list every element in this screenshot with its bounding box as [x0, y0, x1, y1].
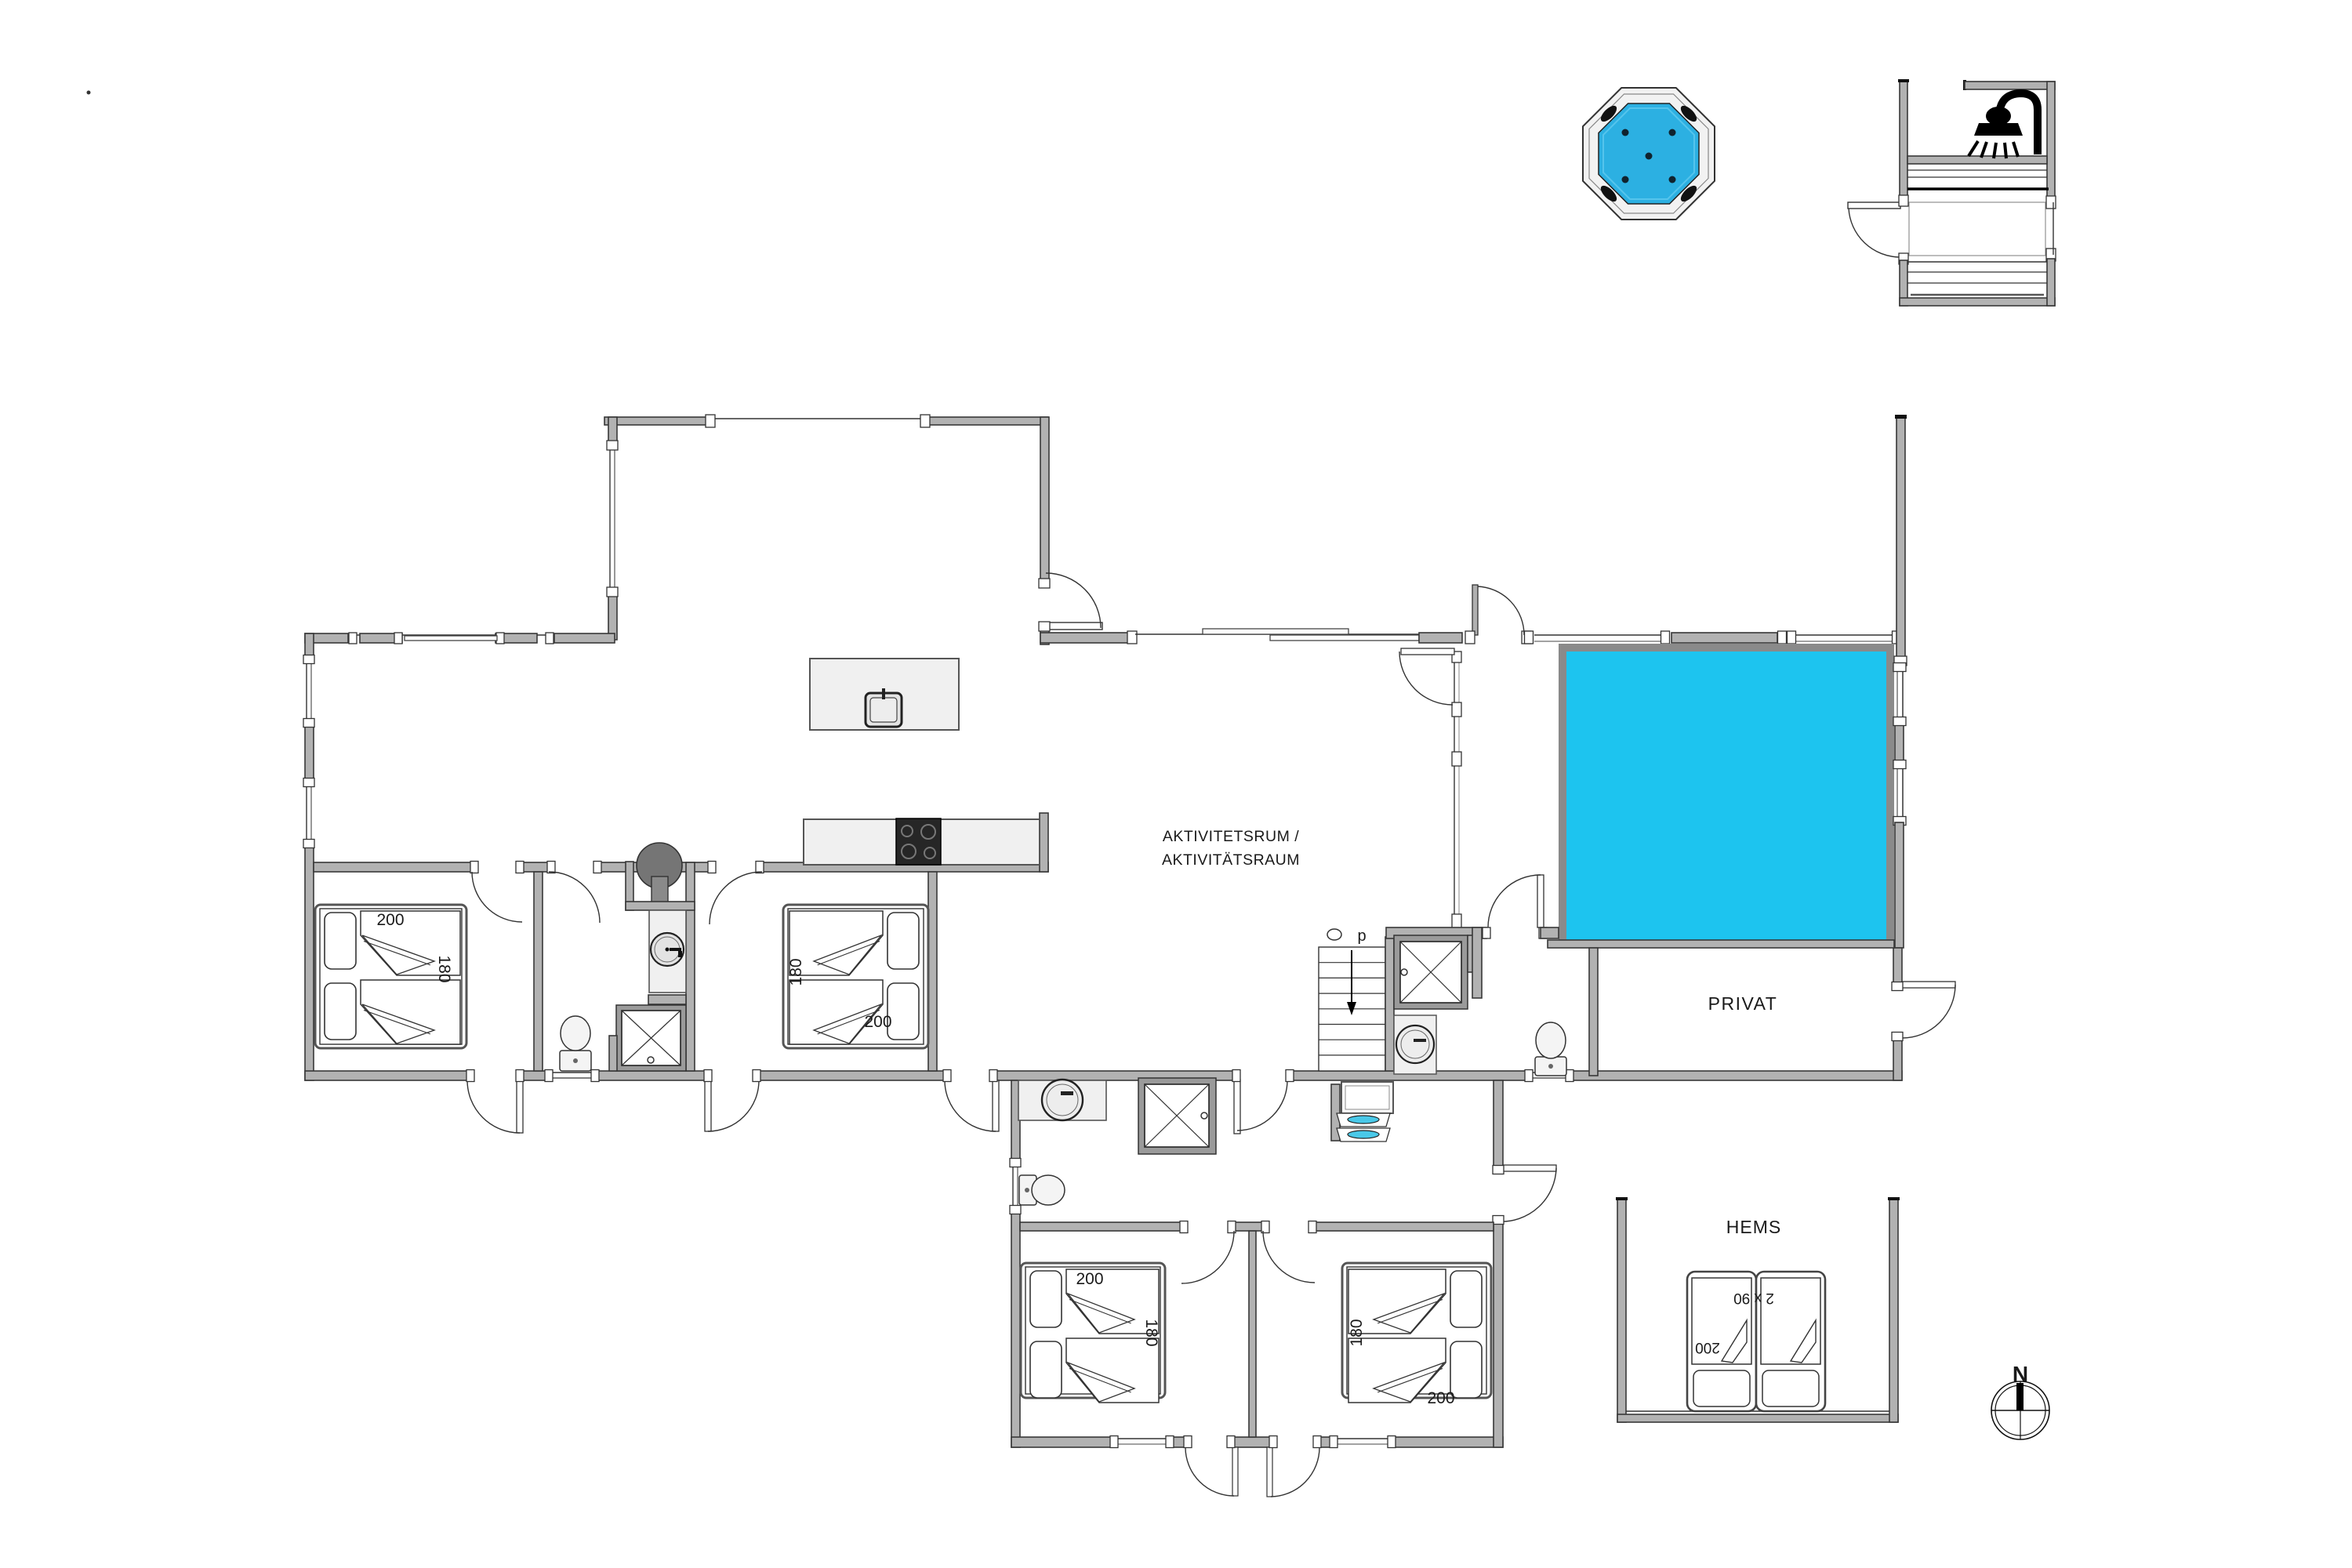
svg-text:180: 180: [787, 958, 805, 985]
svg-text:HEMS: HEMS: [1726, 1217, 1781, 1237]
svg-text:180: 180: [1348, 1319, 1366, 1346]
svg-text:AKTIVITETSRUM /: AKTIVITETSRUM /: [1163, 828, 1299, 845]
svg-text:p: p: [1357, 927, 1366, 945]
svg-text:200: 200: [864, 1013, 891, 1031]
svg-text:180: 180: [1142, 1319, 1160, 1346]
svg-text:200: 200: [1076, 1270, 1103, 1288]
svg-text:N: N: [2013, 1362, 2028, 1386]
svg-text:200: 200: [1695, 1339, 1720, 1356]
svg-text:200: 200: [376, 911, 404, 929]
svg-text:180: 180: [435, 955, 453, 982]
svg-text:2 x 90: 2 x 90: [1733, 1290, 1774, 1306]
svg-text:PRIVAT: PRIVAT: [1708, 993, 1778, 1014]
svg-text:AKTIVITÄTSRAUM: AKTIVITÄTSRAUM: [1162, 851, 1300, 869]
svg-text:200: 200: [1427, 1389, 1454, 1407]
